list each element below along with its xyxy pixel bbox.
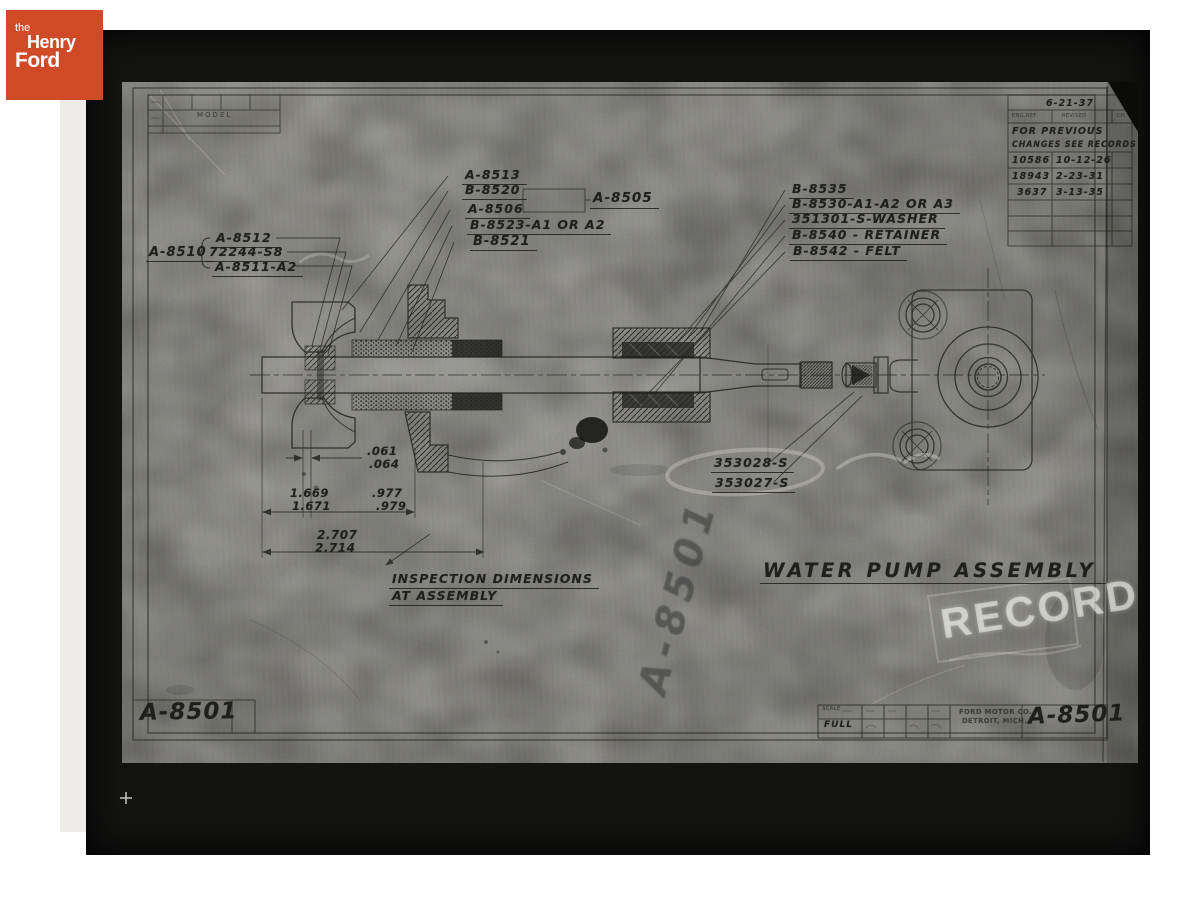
revision-date: 6-21-37	[1046, 99, 1094, 109]
dim-1669: 1.669	[290, 488, 329, 500]
corner-number-right: A-8501	[1028, 702, 1126, 728]
henry-ford-logo: the Henry Ford	[6, 10, 103, 100]
revision-col-ch: CH.	[1117, 114, 1127, 119]
part-callout-a8511a2: A-8511-A2	[212, 261, 303, 277]
model-label: MODEL	[197, 112, 232, 119]
dim-1671: 1.671	[292, 501, 331, 513]
part-callout-a8510: A-8510	[146, 246, 213, 262]
part-callout-353027s: 353027-S	[712, 477, 795, 493]
revision-row-ref: 10586	[1012, 156, 1050, 166]
inspection-note-line1: INSPECTION DIMENSIONS	[389, 573, 599, 589]
dim-2707: 2.707	[317, 529, 357, 541]
dim-979: .979	[376, 501, 406, 513]
scale-label: SCALE	[822, 707, 841, 712]
museum-scan-page: the Henry Ford A-8510 A-8512 72244-S8 A-…	[0, 0, 1200, 900]
revision-col-revised: REVISED	[1062, 114, 1087, 119]
revision-note-line1: FOR PREVIOUS	[1012, 127, 1103, 137]
drawing-title: WATER PUMP ASSEMBLY	[760, 561, 1110, 584]
revision-row-ref: 3637	[1017, 188, 1047, 198]
inspection-note-line2: AT ASSEMBLY	[389, 590, 503, 606]
revision-row-ref: 18943	[1012, 172, 1050, 182]
revision-col-engref: ENG.REF	[1012, 114, 1037, 119]
revision-row-date: 10-12-26	[1056, 156, 1112, 166]
dim-061: .061	[367, 446, 397, 458]
revision-row-date: 2-23-31	[1056, 172, 1104, 182]
part-callout-b8542: B-8542 - FELT	[790, 245, 907, 261]
corner-number-left: A-8501	[140, 700, 238, 725]
part-callout-b8521: B-8521	[470, 235, 537, 251]
part-callout-b8520: B-8520	[462, 184, 527, 200]
revision-note-line2: CHANGES SEE RECORDS	[1012, 141, 1137, 150]
revision-row-date: 3-13-35	[1056, 188, 1104, 198]
registration-mark	[120, 792, 132, 804]
company-line1: FORD MOTOR CO.	[959, 709, 1032, 716]
dim-977: .977	[372, 488, 402, 500]
dim-2714: 2.714	[315, 542, 355, 554]
part-callout-b8523: B-8523-A1 OR A2	[467, 219, 611, 235]
part-callout-a8505: A-8505	[590, 192, 659, 209]
company-line2: DETROIT, MICH.	[962, 718, 1027, 725]
part-callout-353028s: 353028-S	[711, 457, 794, 473]
dim-064: .064	[369, 459, 399, 471]
scale-value: FULL	[824, 721, 853, 730]
logo-ford: Ford	[15, 50, 60, 71]
